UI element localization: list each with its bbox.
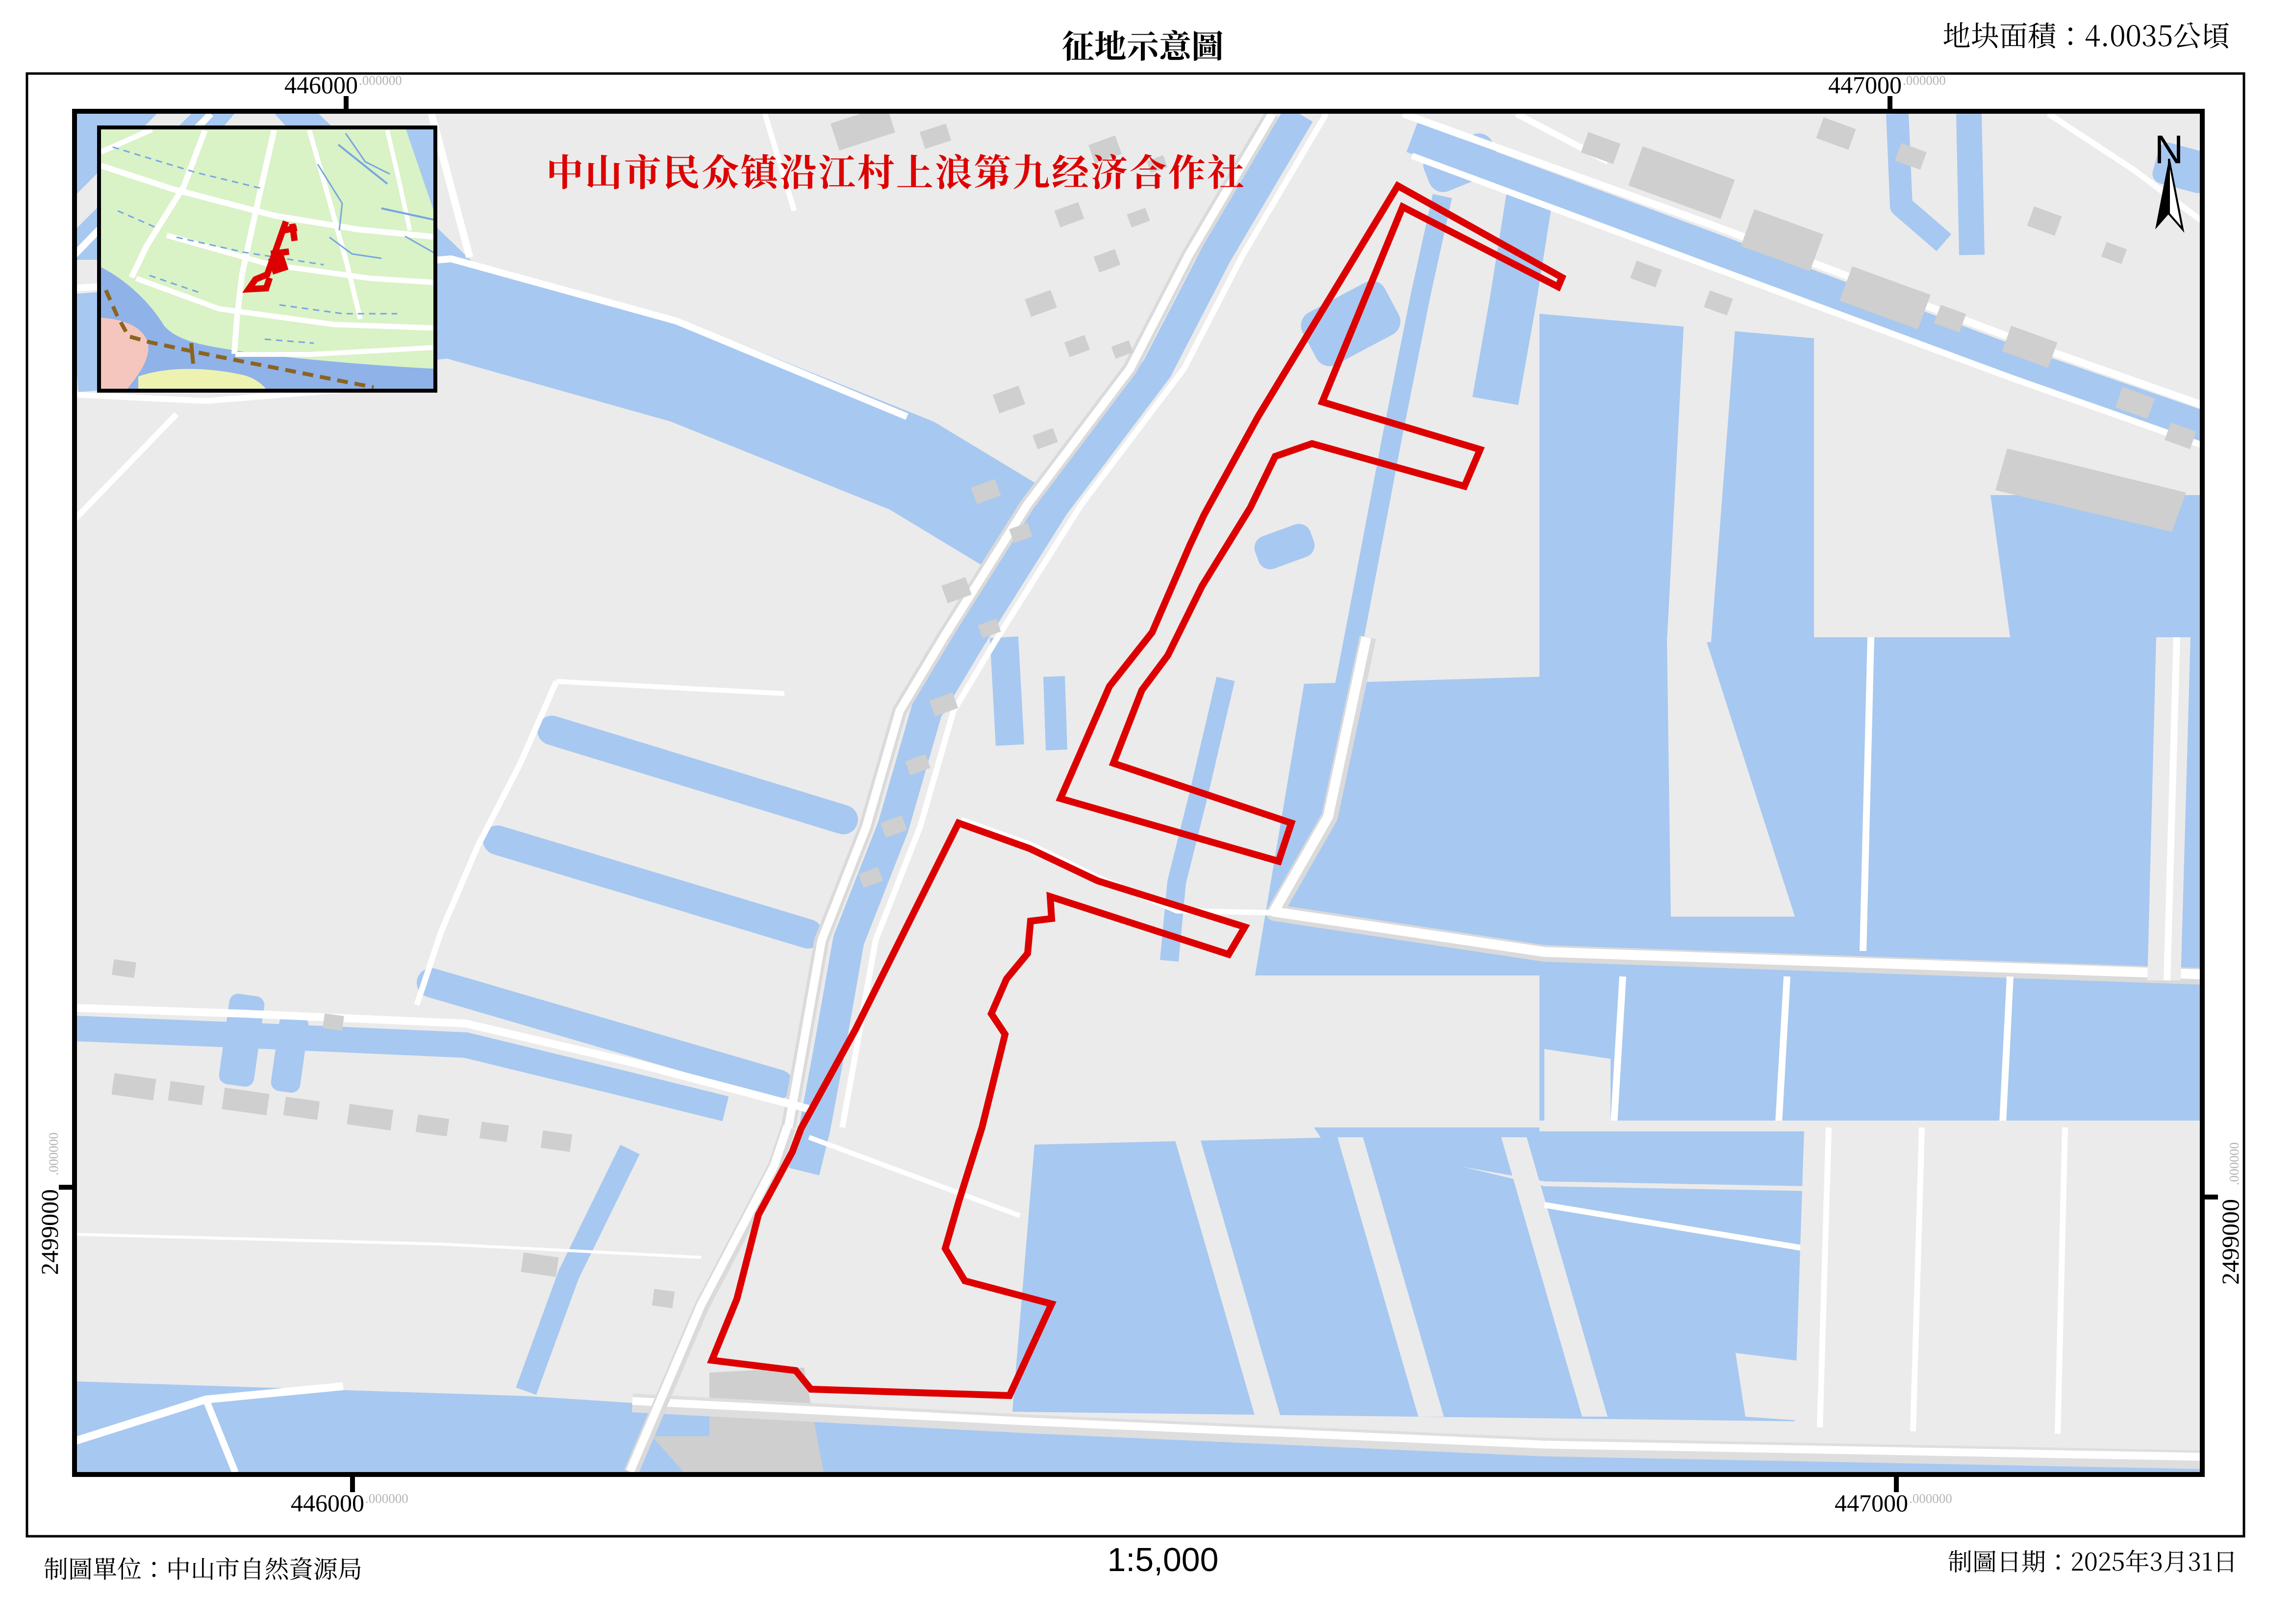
svg-text:447000: 447000 <box>1835 1489 1908 1517</box>
svg-text:446000: 446000 <box>284 71 358 99</box>
svg-text:.000000: .000000 <box>359 73 402 88</box>
svg-text:447000: 447000 <box>1828 71 1902 99</box>
svg-text:446000: 446000 <box>291 1489 364 1517</box>
svg-text:.000000: .000000 <box>365 1491 408 1506</box>
svg-text:.000000: .000000 <box>46 1132 61 1175</box>
svg-text:2499000: 2499000 <box>36 1189 63 1275</box>
svg-text:N: N <box>2154 127 2183 172</box>
svg-text:.000000: .000000 <box>1903 73 1946 88</box>
svg-text:1:5,000: 1:5,000 <box>1108 1541 1219 1578</box>
svg-text:.000000: .000000 <box>2227 1142 2242 1185</box>
svg-text:.000000: .000000 <box>1909 1491 1952 1506</box>
svg-text:2499000: 2499000 <box>2216 1199 2244 1285</box>
